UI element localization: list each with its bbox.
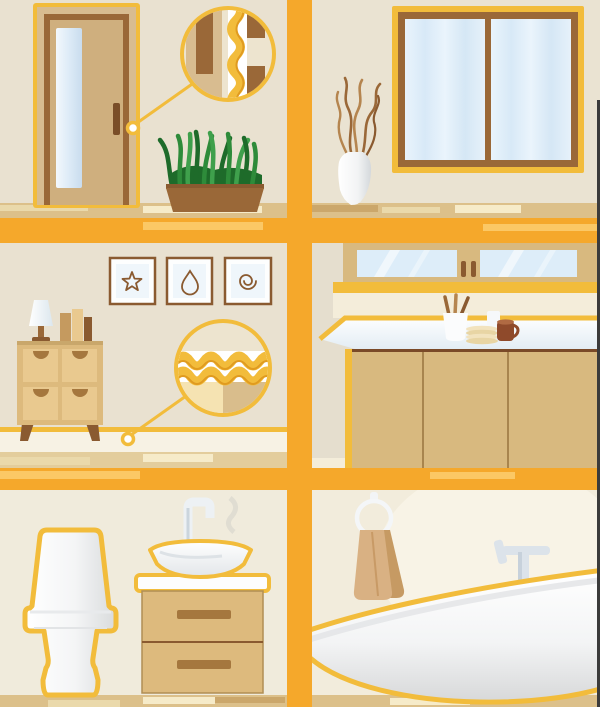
- cabinet-glass-left: [357, 250, 457, 277]
- door: [33, 3, 140, 208]
- cabinet-handle-icon: [461, 261, 466, 277]
- wall-art-star: [110, 258, 155, 304]
- utensil-crock: [443, 313, 468, 341]
- double-pane-window: [392, 6, 584, 173]
- plate-stack: [466, 326, 498, 344]
- cabinet-handle-icon: [471, 261, 476, 277]
- upper-glass-cabinets: [343, 243, 600, 282]
- cabinet-glass-right: [480, 250, 577, 277]
- wall-art-spiral: [225, 258, 271, 304]
- door-handle-icon: [113, 103, 120, 135]
- drawer-handle-icon: [177, 610, 231, 619]
- panel-window-room: [312, 0, 600, 243]
- vessel-sink: [150, 541, 251, 577]
- panel-bathtub-room: [312, 490, 600, 707]
- beam-texture-patch: [143, 222, 263, 230]
- under-cabinet-trim: [333, 282, 600, 293]
- vertical-beam: [287, 0, 312, 707]
- lower-cabinets: [345, 349, 600, 468]
- beam-texture-patch: [483, 224, 600, 231]
- beam-texture-patch: [0, 471, 140, 479]
- panel-living-room: [0, 243, 312, 490]
- window-pane-left: [405, 19, 485, 160]
- illustration-canvas: [0, 0, 600, 707]
- window-pane-right: [491, 19, 571, 160]
- callout-anchor-dot: [128, 123, 139, 134]
- door-glass-panel: [56, 28, 82, 188]
- panel-entry-door: [0, 0, 312, 243]
- planter: [166, 188, 264, 212]
- panel-kitchen: [312, 243, 600, 490]
- beam-texture-patch: [430, 472, 515, 479]
- callout-anchor-dot: [123, 434, 134, 445]
- panel-bathroom-vanity: [0, 490, 312, 707]
- wall-art-droplet: [167, 258, 212, 304]
- drawer-handle-icon: [177, 660, 231, 669]
